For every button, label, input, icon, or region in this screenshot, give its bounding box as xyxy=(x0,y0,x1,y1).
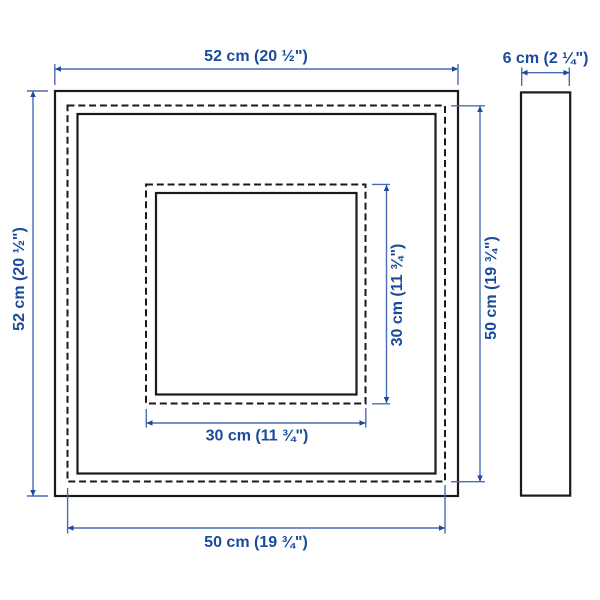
svg-text:6 cm (2 ¼"): 6 cm (2 ¼") xyxy=(503,50,589,67)
svg-text:52 cm (20 ½"): 52 cm (20 ½") xyxy=(204,48,308,65)
svg-text:30 cm (11 ¾"): 30 cm (11 ¾") xyxy=(389,244,406,347)
svg-text:50 cm (19 ¾"): 50 cm (19 ¾") xyxy=(483,236,500,340)
svg-text:30 cm (11 ¾"): 30 cm (11 ¾") xyxy=(206,428,309,445)
svg-text:52 cm (20 ½"): 52 cm (20 ½") xyxy=(11,227,28,331)
svg-text:50 cm (19 ¾"): 50 cm (19 ¾") xyxy=(204,534,308,551)
